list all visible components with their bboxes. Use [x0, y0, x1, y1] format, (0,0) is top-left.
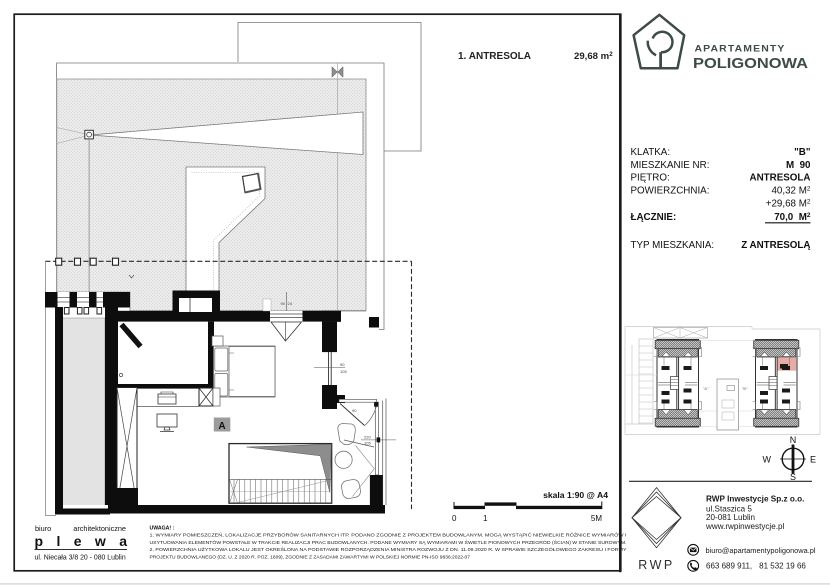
- svg-text:+29,68 M2: +29,68 M2: [766, 199, 811, 210]
- svg-text:S: S: [790, 472, 796, 482]
- svg-text:skala 1:90 @ A4: skala 1:90 @ A4: [543, 490, 608, 500]
- svg-text:E: E: [810, 455, 816, 465]
- svg-text:RWP: RWP: [638, 558, 674, 572]
- svg-text:KLATKA:: KLATKA:: [631, 147, 671, 158]
- svg-text:1. WYMIARY POMIESZCZEŃ, LOKALI: 1. WYMIARY POMIESZCZEŃ, LOKALIZACJE PRZY…: [150, 532, 627, 539]
- svg-text:105: 105: [340, 369, 347, 374]
- svg-text:29,68 m2: 29,68 m2: [574, 51, 613, 62]
- svg-text:"B": "B": [794, 147, 810, 158]
- svg-text:ANTRESOLA: ANTRESOLA: [750, 173, 811, 184]
- svg-text:20-081 Lublin: 20-081 Lublin: [706, 513, 755, 522]
- svg-text:ŁĄCZNIE:: ŁĄCZNIE:: [631, 212, 677, 223]
- svg-text:0: 0: [452, 514, 457, 523]
- svg-text:POLIGONOWA: POLIGONOWA: [693, 56, 809, 72]
- svg-text:24: 24: [288, 301, 293, 306]
- svg-text:220: 220: [364, 435, 371, 440]
- svg-text:"B": "B": [742, 386, 748, 391]
- svg-text:MIESZKANIE NR:: MIESZKANIE NR:: [631, 160, 710, 171]
- svg-text:UWAGA! :: UWAGA! :: [150, 526, 175, 532]
- svg-text:POWIERZCHNIA:: POWIERZCHNIA:: [631, 186, 710, 197]
- svg-text:PIĘTRO:: PIĘTRO:: [631, 173, 670, 184]
- svg-text:architektoniczne: architektoniczne: [73, 524, 126, 533]
- svg-text:70,0 M2: 70,0 M2: [774, 212, 811, 223]
- svg-text:biuro: biuro: [35, 524, 51, 533]
- svg-text:www.rwpinwestycje.pl: www.rwpinwestycje.pl: [705, 522, 784, 531]
- svg-text:ul. Niecała 3/8 20 - 080 Lubl: ul. Niecała 3/8 20 - 080 Lublin: [35, 555, 126, 562]
- svg-text:"A": "A": [703, 386, 709, 391]
- svg-text:PROJEKTU BUDOWLANEGO (DZ. U. Z: PROJEKTU BUDOWLANEGO (DZ. U. Z 2020 R. P…: [150, 554, 471, 560]
- svg-text:90: 90: [281, 301, 286, 306]
- svg-text:90: 90: [340, 362, 345, 367]
- svg-text:N: N: [790, 435, 797, 445]
- svg-text:90: 90: [352, 408, 357, 413]
- svg-text:40,32 M2: 40,32 M2: [771, 186, 810, 197]
- svg-text:TYP MIESZKANIA:: TYP MIESZKANIA:: [631, 240, 715, 251]
- svg-text:biuro@apartamentypoligonowa.pl: biuro@apartamentypoligonowa.pl: [706, 546, 816, 555]
- svg-text:RWP Inwestycje Sp.z o.o.: RWP Inwestycje Sp.z o.o.: [706, 495, 804, 504]
- svg-text:A: A: [218, 421, 225, 432]
- svg-text:1: 1: [483, 514, 488, 523]
- svg-text:APARTAMENTY: APARTAMENTY: [695, 44, 786, 54]
- svg-text:W: W: [763, 455, 772, 465]
- svg-text:M 90: M 90: [786, 160, 811, 171]
- svg-text:Z ANTRESOLĄ: Z ANTRESOLĄ: [741, 240, 810, 251]
- svg-text:5M: 5M: [591, 514, 602, 523]
- svg-text:1. ANTRESOLA: 1. ANTRESOLA: [458, 51, 531, 62]
